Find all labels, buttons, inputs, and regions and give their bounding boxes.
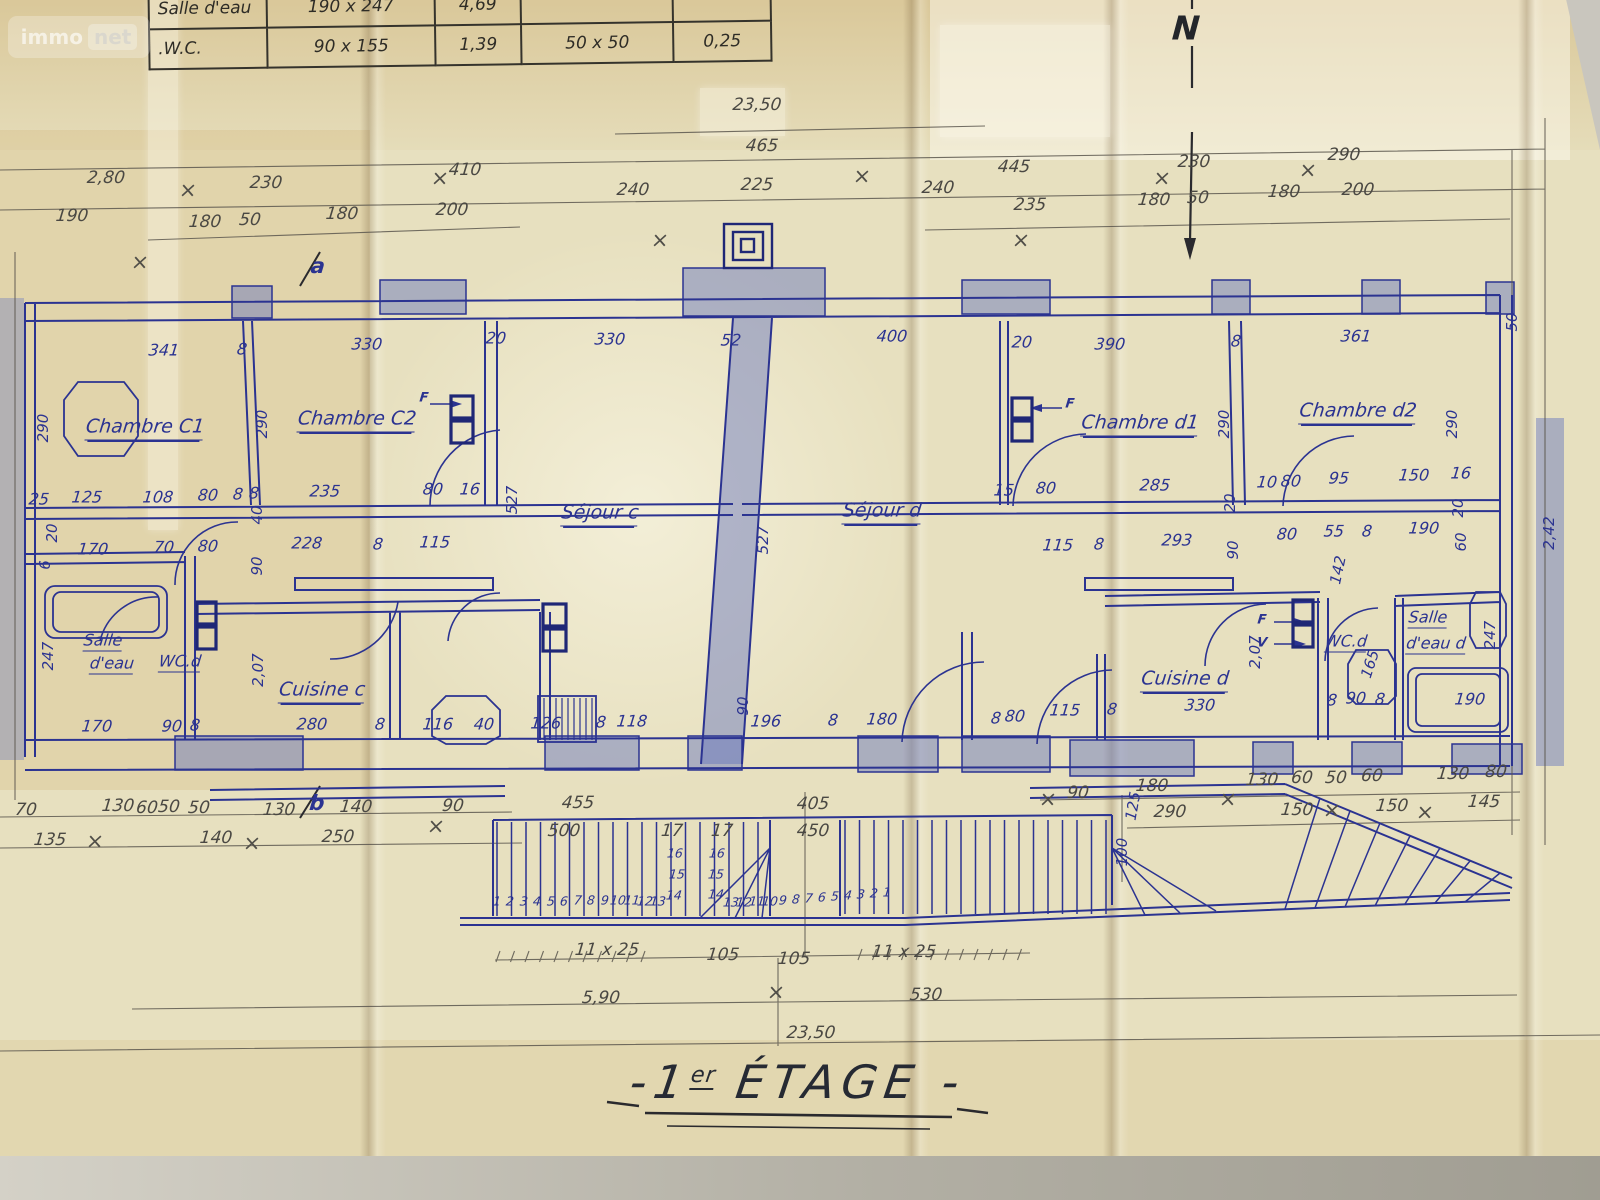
dimension-label: 8 [1093, 535, 1105, 554]
dimension-label: 115 [1042, 536, 1075, 555]
dimension-label: 80 [1280, 472, 1302, 491]
dimension-label: 135 [33, 830, 68, 850]
dimension-label: 55 [1323, 522, 1345, 541]
schedule-cell: Salle d'eau [148, 0, 267, 29]
dimension-label: 140 [339, 797, 374, 817]
dimension-label: 293 [1161, 531, 1194, 550]
dimension-label: 527 [754, 526, 772, 555]
dimension-label: 90 [1345, 689, 1367, 708]
dimension-label: 330 [351, 335, 384, 354]
door-slab [295, 578, 493, 590]
dimension-label: 80 [422, 480, 444, 499]
pencil-cross: × [852, 164, 872, 188]
stair-number: 3 [519, 894, 529, 909]
dimension-label: 80 [1004, 707, 1026, 726]
dimension-label: 20 [1011, 333, 1033, 352]
shaded-wall-pier [683, 268, 825, 316]
dimension-label: 235 [1013, 195, 1048, 215]
dimension-label: 40 [248, 505, 266, 524]
pencil-cross: × [1322, 798, 1342, 822]
dimension-label: 290 [1443, 410, 1461, 439]
dimension-label: 90 [734, 696, 752, 715]
pencil-cross: × [766, 980, 786, 1004]
schedule-cell: .W.C. [149, 28, 268, 70]
dimension-label: 17 [710, 821, 734, 841]
dimension-label: 235 [309, 482, 342, 501]
dimension-label: 80 [1035, 479, 1057, 498]
shaded-wall-pier [1362, 280, 1400, 314]
dimension-label: 330 [1184, 696, 1217, 715]
dimension-label: 60 [1360, 766, 1384, 786]
stair-number: 2 [505, 894, 515, 909]
dimension-label: 50 [1503, 312, 1521, 331]
dimension-label: 25 [28, 490, 50, 509]
dimension-label: 80 [197, 486, 219, 505]
dimension-label: 196 [750, 712, 783, 731]
watermark-badge: immo net [8, 16, 150, 58]
dimension-label: 16 [1450, 464, 1472, 483]
dimension-label: 60 [1452, 532, 1470, 551]
dimension-label: 115 [419, 533, 452, 552]
dimension-label: 180 [866, 710, 899, 729]
dimension-label: 180 [1137, 190, 1172, 210]
room-label: Cuisine d [1140, 668, 1230, 693]
stair-number: 6 [559, 894, 569, 909]
dimension-label: 180 [188, 212, 223, 232]
room-label: Séjour c [560, 502, 640, 527]
dimension-label: 405 [796, 794, 831, 814]
room-label: WC.d [1324, 632, 1368, 653]
stair-number: 2 [869, 886, 879, 901]
pencil-cross: × [430, 166, 450, 190]
window-mark: F [1065, 397, 1075, 412]
dimension-label: 8 [827, 711, 839, 730]
room-label: Chambre C1 [84, 416, 205, 441]
dimension-label: 330 [594, 330, 627, 349]
stair-number: 8 [791, 892, 801, 907]
shaded-wall-pier [688, 736, 742, 770]
dimension-label: 230 [249, 173, 284, 193]
room-label: Salle [1408, 608, 1449, 629]
room-label: Chambre d1 [1080, 412, 1200, 437]
dimension-label: 130 [1436, 764, 1471, 784]
shaded-wall-pier [1070, 740, 1194, 776]
dimension-label: 180 [1267, 182, 1302, 202]
pencil-lines-layer [0, 118, 1600, 1051]
dimension-label: 11 x 25 [574, 940, 640, 960]
north-label: N [1171, 9, 1201, 48]
dimension-label: 60 [1290, 768, 1314, 788]
stair-number: 14 [707, 887, 724, 902]
dimension-label: 465 [745, 136, 780, 156]
dimension-label: 60 [135, 798, 159, 818]
dimension-label: 90 [161, 717, 183, 736]
dimension-label: 118 [616, 712, 649, 731]
dimension-label: 8 [1230, 332, 1242, 351]
dimension-label: 20 [1221, 493, 1239, 512]
dimension-label: 2,42 [1540, 516, 1558, 549]
dimension-label: 530 [909, 985, 944, 1005]
pencil-cross: × [1415, 800, 1435, 824]
watermark-text: net [88, 24, 137, 50]
schedule-cell: 90 x 155 [267, 25, 436, 67]
dimension-label: 105 [706, 945, 741, 965]
pencil-cross: × [1218, 787, 1238, 811]
dimension-label: 95 [1328, 469, 1350, 488]
dimension-label: 5,90 [581, 988, 621, 1008]
dimension-label: 80 [1276, 525, 1298, 544]
stair-number: 8 [586, 893, 596, 908]
pencil-cross: × [85, 829, 105, 853]
dimension-label: 285 [1139, 476, 1172, 495]
pencil-cross: × [650, 228, 670, 252]
room-label: Chambre d2 [1298, 400, 1418, 425]
dimension-label: 500 [547, 821, 582, 841]
dimension-label: 11 x 25 [871, 942, 937, 962]
dimension-label: 450 [796, 821, 831, 841]
dimension-label: 190 [55, 206, 90, 226]
dimension-label: 80 [1484, 762, 1508, 782]
dimension-label: 200 [1341, 180, 1376, 200]
dimension-label: 247 [1481, 621, 1499, 650]
section-marker: a [310, 254, 327, 278]
room-label: WC.d [158, 652, 202, 673]
dimension-label: 70 [14, 800, 38, 820]
dimension-label: 290 [1153, 802, 1188, 822]
dimension-label: 10 [1256, 473, 1278, 492]
dimension-label: 225 [740, 175, 775, 195]
stair-number: 15 [707, 867, 724, 882]
stair-number: 1 [882, 885, 892, 900]
pencil-cross: × [242, 831, 262, 855]
dimension-label: 240 [616, 180, 651, 200]
stair-number: 6 [817, 890, 827, 905]
dimension-label: 240 [921, 178, 956, 198]
dimension-label: 150 [1398, 466, 1431, 485]
shaded-wall-pier [175, 736, 303, 770]
dimension-label: 230 [1177, 152, 1212, 172]
dimension-label: 290 [1215, 410, 1233, 439]
schedule-cell [520, 0, 673, 24]
dimension-label: 250 [321, 827, 356, 847]
room-label: Cuisine c [278, 679, 367, 704]
chimney [724, 224, 772, 268]
pencil-cross: × [1152, 166, 1172, 190]
schedule-cell: 1,39 [435, 24, 522, 65]
dimension-label: 130 [101, 796, 136, 816]
room-label: Chambre C2 [296, 408, 417, 433]
dimension-label: 8 [595, 713, 607, 732]
dimension-label: 8 [236, 340, 248, 359]
stair-number: 7 [804, 891, 814, 906]
dimension-label: 341 [148, 341, 181, 360]
stair-number: 10 [761, 894, 778, 909]
dimension-label: 8 [1326, 691, 1338, 710]
dimension-label: 400 [876, 327, 909, 346]
dimension-label: 15 [993, 481, 1015, 500]
dimension-label: 90 [248, 556, 266, 575]
pencil-cross: × [130, 250, 150, 274]
dimension-label: 410 [448, 160, 483, 180]
dimension-label: 8 [1374, 690, 1386, 709]
dimension-label: 90 [441, 796, 465, 816]
dimension-label: 40 [473, 715, 495, 734]
dimension-label: 455 [561, 793, 596, 813]
dimension-label: 280 [296, 715, 329, 734]
shaded-wall-pier [380, 280, 466, 314]
dimension-label: 20 [485, 329, 507, 348]
window-mark: V [1256, 636, 1268, 651]
room-label: Séjour d [841, 500, 922, 525]
dimension-label: 6 [36, 560, 54, 570]
dimension-label: 145 [1467, 792, 1502, 812]
dimension-label: 290 [253, 410, 271, 439]
dimension-label: 20 [43, 523, 61, 542]
dimension-label: 8 [232, 485, 244, 504]
watermark-text: immo [21, 25, 83, 49]
dimension-label: 50 [1186, 188, 1210, 208]
dimension-label: 90 [1066, 783, 1090, 803]
dimension-label: 125 [71, 488, 104, 507]
dimension-label: 130 [262, 800, 297, 820]
stair-number: 14 [665, 888, 682, 903]
dimension-label: 50 [157, 797, 181, 817]
dimension-label: 228 [291, 534, 324, 553]
dimension-label: 8 [248, 484, 260, 503]
dimension-label: 2,80 [86, 168, 126, 188]
pencil-cross: × [1298, 158, 1318, 182]
stair-number: 9 [600, 893, 610, 908]
dimension-label: 361 [1340, 327, 1373, 346]
pencil-cross: × [1038, 787, 1058, 811]
dimension-label: 8 [1106, 700, 1118, 719]
pencil-cross: × [1011, 228, 1031, 252]
dimension-label: 108 [142, 488, 175, 507]
dimension-label: 445 [997, 157, 1032, 177]
dimension-label: 8 [189, 716, 201, 735]
window-mark: F [419, 391, 429, 406]
stair-number: 1 [492, 894, 502, 909]
dimension-label: 2,07 [249, 653, 267, 686]
room-schedule-table: Salle d'eau190 x 2474,69.W.C.90 x 1551,3… [147, 0, 772, 70]
schedule-row: .W.C.90 x 1551,3950 x 500,25 [149, 21, 771, 70]
stair-number: 15 [668, 867, 685, 882]
blueprint-photo: Salle d'eau190 x 2474,69.W.C.90 x 1551,3… [0, 0, 1600, 1200]
plan-title: -1er ÉTAGE - [626, 1055, 969, 1109]
dimension-label: 170 [77, 540, 110, 559]
stair-number: 5 [546, 894, 556, 909]
dimension-label: 247 [39, 642, 57, 671]
dimension-label: 180 [325, 204, 360, 224]
dimension-label: 52 [720, 331, 742, 350]
schedule-cell: 50 x 50 [521, 22, 674, 64]
dimension-label: 116 [422, 715, 455, 734]
dimension-label: 17 [660, 821, 684, 841]
dimension-label: 190 [1408, 519, 1441, 538]
dimension-label: 8 [1361, 522, 1373, 541]
dimension-label: 105 [777, 949, 812, 969]
dimension-label: 527 [503, 486, 521, 515]
dimension-label: 130 [1245, 770, 1280, 790]
dimension-label: 16 [459, 480, 481, 499]
dimension-label: 390 [1094, 335, 1127, 354]
door-slab [1085, 578, 1233, 590]
room-label: d'eau [89, 654, 136, 675]
dimension-label: 150 [1375, 796, 1410, 816]
stair-number: 13 [649, 894, 666, 909]
schedule-cell: 4,69 [434, 0, 521, 25]
window-mark: F [1257, 613, 1267, 628]
stair-number: 7 [573, 893, 583, 908]
room-label: d'eau d [1405, 634, 1467, 655]
stair-number: 16 [666, 846, 683, 861]
dimension-label: 50 [238, 210, 262, 230]
stair-number: 4 [843, 888, 853, 903]
stair-number: 9 [778, 893, 788, 908]
dimension-label: 290 [34, 414, 52, 443]
pencil-cross: × [426, 814, 446, 838]
dimension-label: 100 [1113, 838, 1131, 867]
shaded-wall-pier [545, 736, 639, 770]
dimension-label: 23,50 [786, 1023, 837, 1043]
dimension-label: 115 [1049, 701, 1082, 720]
dimension-label: 170 [81, 717, 114, 736]
room-label: Salle [83, 631, 124, 652]
stair-number: 16 [708, 846, 725, 861]
dimension-label: 90 [1224, 540, 1242, 559]
dimension-label: 20 [1449, 498, 1467, 517]
dimension-label: 8 [372, 535, 384, 554]
dimension-label: 8 [374, 715, 386, 734]
pencil-cross: × [178, 178, 198, 202]
schedule-cell: 190 x 247 [266, 0, 435, 28]
section-marker: b [308, 791, 326, 815]
dimension-label: 290 [1327, 145, 1362, 165]
schedule-cell: 0,25 [673, 21, 772, 62]
stair-number: 4 [532, 894, 542, 909]
dimension-label: 126 [530, 714, 563, 733]
dimension-label: 70 [153, 538, 175, 557]
dimension-label: 190 [1454, 690, 1487, 709]
stair-number: 3 [856, 887, 866, 902]
dimension-label: 23,50 [732, 95, 783, 115]
schedule-cell [672, 0, 771, 22]
dimension-label: 50 [187, 798, 211, 818]
dimension-label: 80 [197, 537, 219, 556]
dimension-label: 50 [1324, 768, 1348, 788]
dimension-label: 200 [435, 200, 470, 220]
dimension-label: 150 [1280, 800, 1315, 820]
dimension-label: 8 [990, 709, 1002, 728]
dimension-label: 140 [199, 828, 234, 848]
stair-number: 5 [830, 889, 840, 904]
